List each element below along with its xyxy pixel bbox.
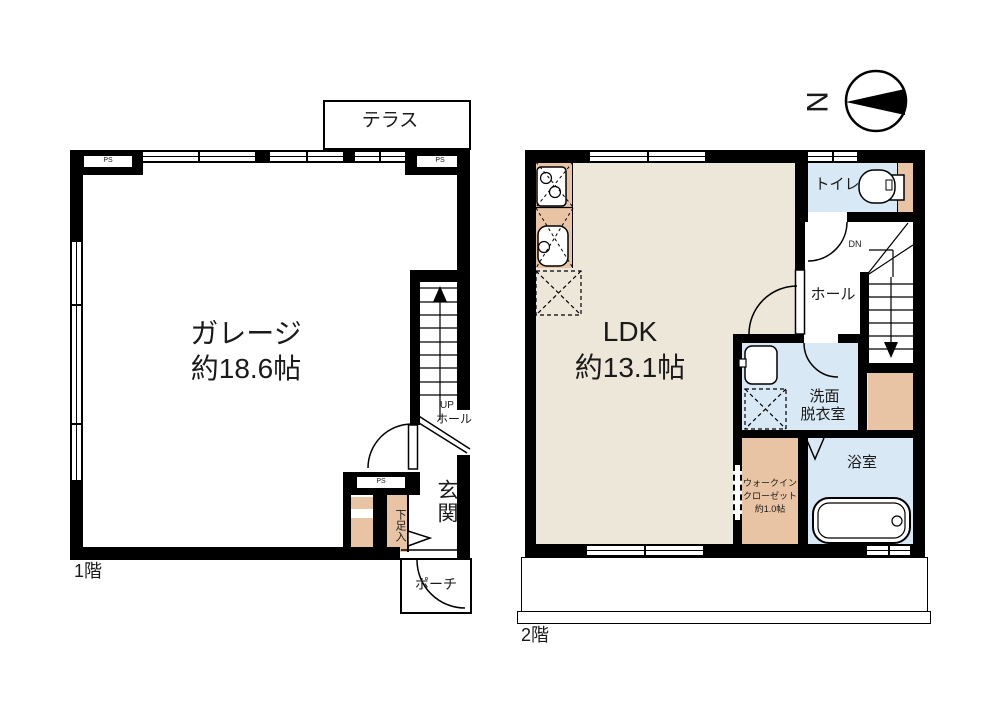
wall — [860, 363, 913, 373]
wall — [733, 430, 913, 438]
ldk-label: LDK — [540, 316, 720, 352]
ps-label: PS — [84, 157, 132, 167]
step-marker-icon — [408, 531, 430, 546]
floor2-caption: 2階 — [521, 625, 591, 647]
wic-label-line2: クローゼット — [742, 491, 798, 503]
up-label: UP — [434, 400, 460, 411]
compass-icon — [846, 71, 906, 131]
bathroom-label: 浴室 — [837, 455, 887, 473]
ldk-area-label: 約13.1帖 — [540, 352, 720, 386]
window — [587, 544, 703, 557]
toilet-label: トイレ — [808, 177, 866, 195]
window — [808, 150, 857, 163]
door-arc — [368, 424, 418, 469]
terrace-label: テラス — [330, 110, 450, 136]
entrance-storage — [351, 497, 373, 548]
garage-area-label: 約18.6帖 — [156, 353, 336, 387]
wall — [795, 222, 805, 272]
wall — [798, 438, 808, 548]
entrance-label: 玄関 — [432, 466, 458, 538]
floor1-caption: 1階 — [74, 561, 144, 583]
washroom-label-line1: 洗面 — [797, 389, 852, 406]
wall — [913, 150, 925, 557]
window — [143, 150, 255, 163]
window — [70, 367, 83, 480]
garage-label: ガレージ — [156, 318, 336, 352]
north-label: N — [800, 86, 832, 118]
wall — [733, 334, 868, 343]
door-opening — [808, 212, 847, 222]
wall — [343, 472, 351, 560]
wall — [858, 343, 867, 433]
window — [590, 150, 705, 163]
window — [70, 242, 83, 367]
wall — [410, 270, 470, 282]
wall — [70, 150, 83, 242]
balcony-rail — [517, 611, 931, 624]
kitchen-counter — [536, 162, 573, 268]
entrance-storage-divider — [347, 509, 375, 518]
understairs-storage — [868, 373, 913, 430]
wall — [525, 150, 536, 557]
window — [867, 544, 910, 557]
shoe-storage-label: 下足入 — [390, 499, 406, 551]
wall — [525, 544, 925, 557]
window — [355, 150, 405, 163]
floor-plan-canvas: テラス PS PS PS — [0, 0, 1000, 721]
folding-door — [733, 465, 742, 520]
window — [270, 150, 343, 163]
dn-label: DN — [843, 239, 867, 250]
hall-label-2f: ホール — [805, 287, 861, 304]
wall — [410, 282, 420, 425]
ps-label: PS — [357, 478, 405, 488]
wall — [457, 455, 470, 560]
wall — [525, 150, 925, 163]
washroom-label-line2: 脱衣室 — [797, 407, 849, 424]
toilet-counter — [897, 162, 913, 212]
hall-label-1f: ホール — [433, 413, 475, 427]
porch-label: ポーチ — [402, 577, 470, 594]
wall — [733, 334, 742, 433]
wic-label-line1: ウォークイン — [742, 478, 798, 490]
door-opening — [804, 334, 838, 343]
wall — [407, 495, 409, 552]
wall — [373, 495, 387, 552]
balcony — [521, 557, 928, 613]
wic-area-label: 約1.0帖 — [742, 504, 798, 516]
